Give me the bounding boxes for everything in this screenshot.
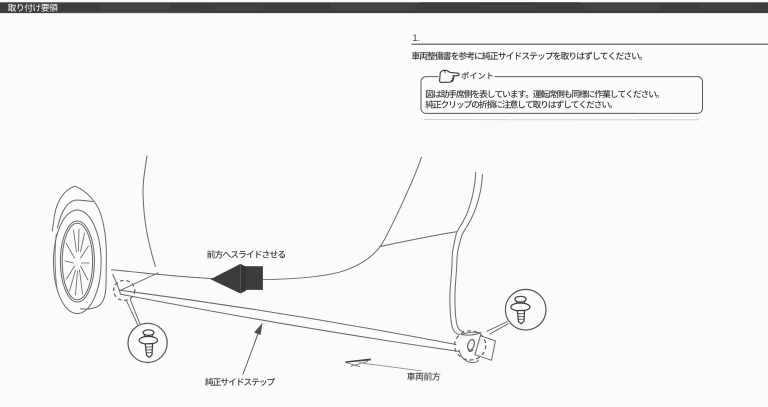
svg-text:1.: 1. bbox=[413, 33, 421, 43]
